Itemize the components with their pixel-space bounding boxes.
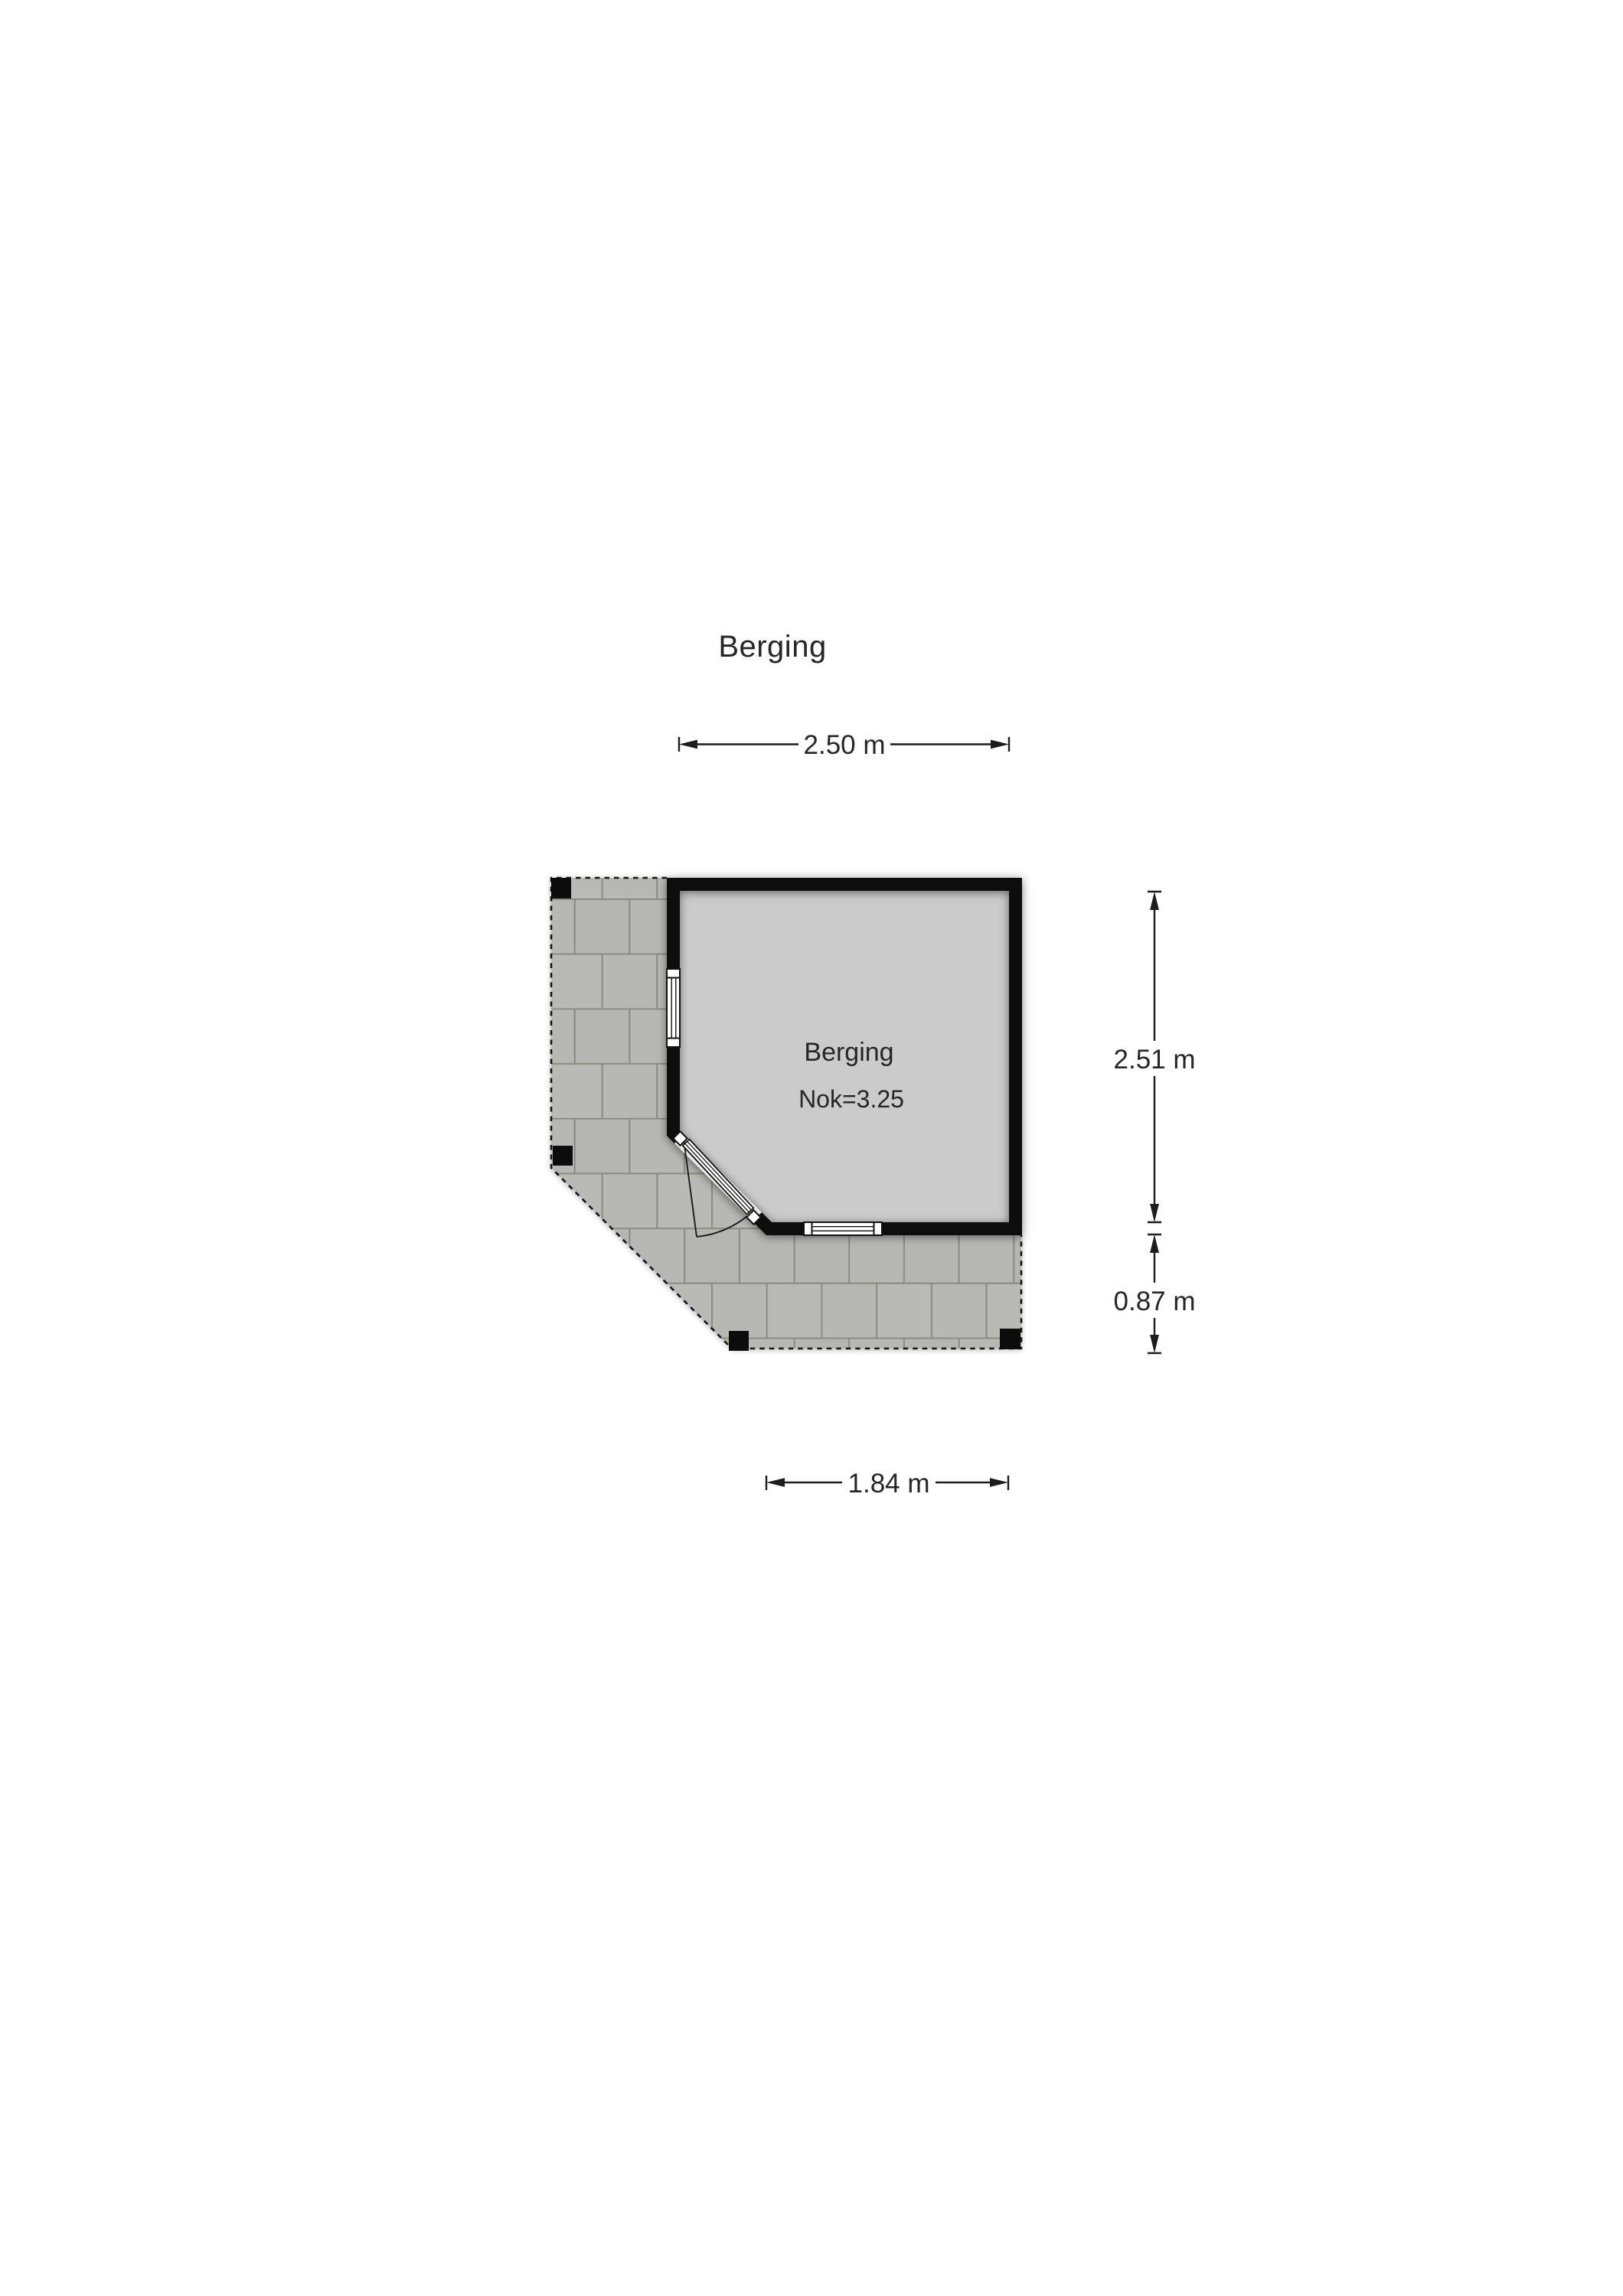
svg-text:1.84 m: 1.84 m — [848, 1469, 930, 1499]
svg-text:2.51 m: 2.51 m — [1114, 1045, 1196, 1075]
svg-text:0.87 m: 0.87 m — [1114, 1287, 1196, 1316]
svg-text:Berging: Berging — [804, 1038, 893, 1067]
svg-text:Berging: Berging — [718, 630, 826, 664]
svg-text:Nok=3.25: Nok=3.25 — [798, 1085, 904, 1113]
svg-text:2.50 m: 2.50 m — [804, 730, 886, 760]
